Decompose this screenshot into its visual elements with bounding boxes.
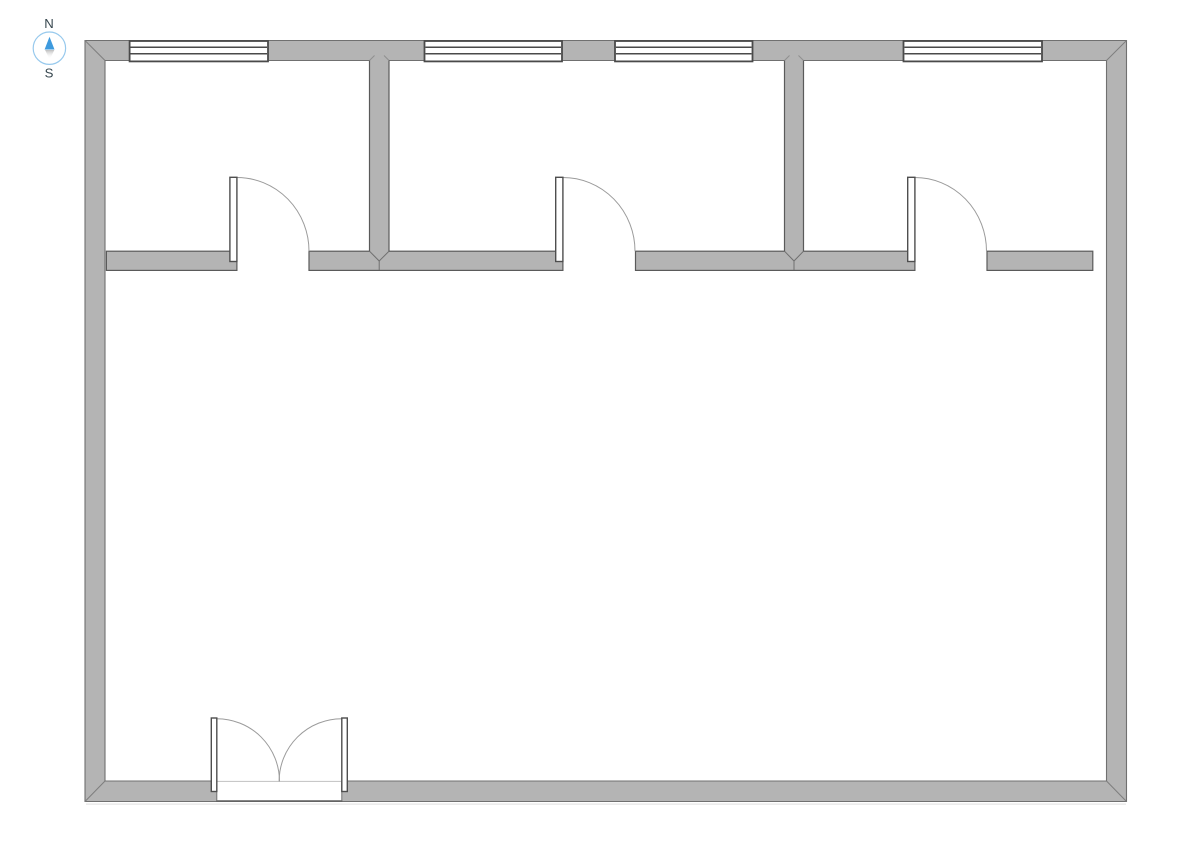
svg-text:S: S <box>45 66 54 81</box>
svg-text:N: N <box>44 16 54 31</box>
